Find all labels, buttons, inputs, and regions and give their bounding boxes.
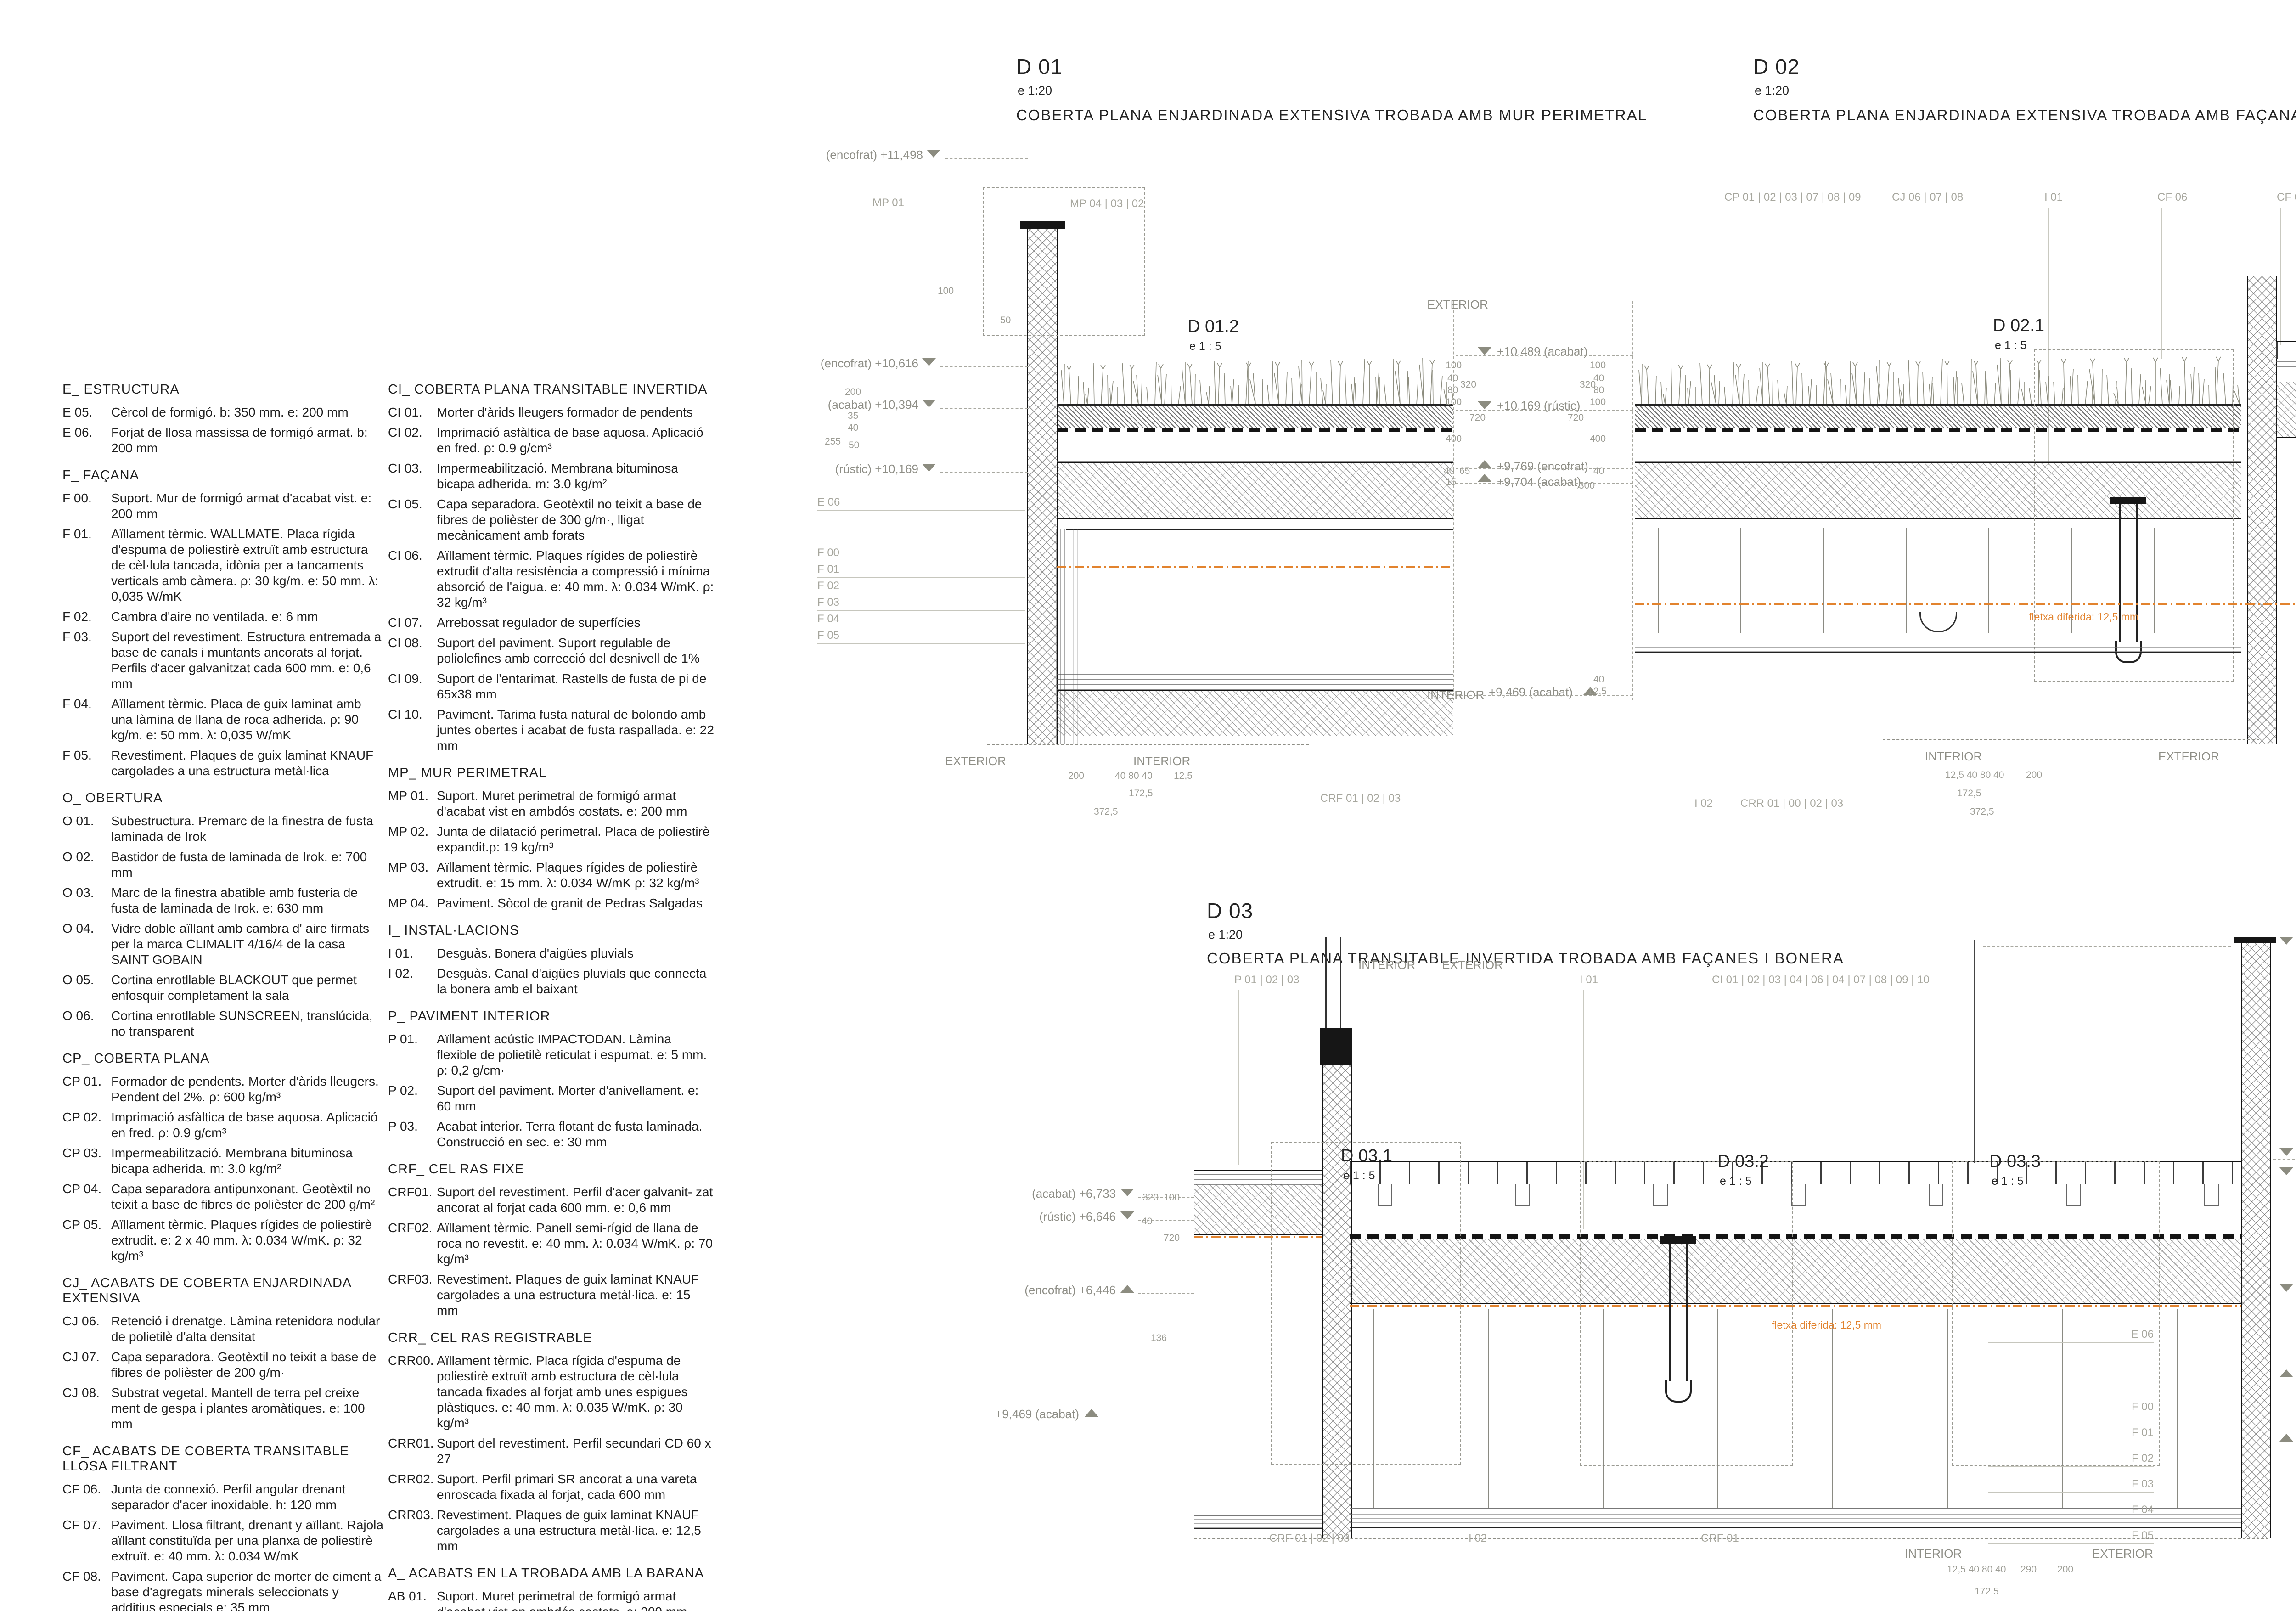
d02-tag-cf-row: CF 07 | 08 xyxy=(2277,191,2296,204)
ceiling-hanger xyxy=(1488,1309,1489,1508)
ceiling-hanger xyxy=(1988,528,1989,633)
d03-code: D 03 xyxy=(1207,898,1253,923)
d02-tag-cf06: CF 06 xyxy=(2157,191,2187,204)
d03-tag-crf01: CRF 01 xyxy=(1701,1532,1739,1545)
legend-item-tag: CP 04. xyxy=(62,1181,111,1212)
d031-scale: e 1 : 5 xyxy=(1343,1169,1375,1183)
legend-item-tag: CF 07. xyxy=(62,1517,111,1564)
d01-dim-40: 40 xyxy=(848,422,858,434)
legend-item-tag: CI 05. xyxy=(388,496,437,543)
legend-item-text: Cèrcol de formigó. b: 350 mm. e: 200 mm xyxy=(111,405,384,420)
level-marker-icon xyxy=(2279,1167,2293,1175)
legend-item-text: Substrat vegetal. Mantell de terra pel c… xyxy=(111,1385,384,1432)
legend-item-text: Suport. Perfil primari SR ancorat a una … xyxy=(437,1471,714,1503)
d02-facade-wall xyxy=(2247,276,2277,744)
legend-item: CJ 06.Retenció i drenatge. Làmina reteni… xyxy=(62,1313,384,1345)
legend-item-tag: O 01. xyxy=(62,813,111,845)
legend-item-tag: P 03. xyxy=(388,1119,437,1150)
d02-scale: e 1:20 xyxy=(1755,84,1789,98)
d02-outer-paving xyxy=(2276,341,2296,359)
d02-suspended-ceiling xyxy=(1635,633,2241,653)
d01-leader xyxy=(945,158,1028,159)
d032-code: D 03.2 xyxy=(1717,1152,1769,1172)
d03-railing xyxy=(1974,940,1975,1163)
legend-item-text: Cambra d'aire no ventilada. e: 6 mm xyxy=(111,609,384,625)
d02-tag-leader xyxy=(2280,208,2281,345)
d03-dim-290: 290 xyxy=(2020,1564,2037,1575)
legend-item-tag: CF 06. xyxy=(62,1481,111,1513)
legend-item-text: Suport de l'entarimat. Rastells de fusta… xyxy=(437,671,714,702)
d03-dim: 320 xyxy=(1142,1192,1159,1203)
legend-item-tag: CI 10. xyxy=(388,707,437,754)
legend-item-tag: E 05. xyxy=(62,405,111,420)
mid-boundary-right xyxy=(1632,301,1633,700)
ceiling-hanger xyxy=(1658,528,1659,633)
legend-item: E 05.Cèrcol de formigó. b: 350 mm. e: 20… xyxy=(62,405,384,420)
mid-leader xyxy=(1456,410,1633,411)
legend-item: O 03.Marc de la finestra abatible amb fu… xyxy=(62,885,384,916)
legend-item-text: Suport del revestiment. Perfil d'acer ga… xyxy=(437,1184,714,1216)
d02-tag-crr-row: CRR 01 | 00 | 02 | 03 xyxy=(1740,797,1843,810)
level-marker-icon xyxy=(1085,1409,1098,1417)
level-marker-icon xyxy=(922,464,936,472)
d03-tag-i02: I 02 xyxy=(1469,1532,1487,1545)
d01-title: COBERTA PLANA ENJARDINADA EXTENSIVA TROB… xyxy=(1016,107,1647,124)
legend-item: AB 01.Suport. Muret perimetral de formig… xyxy=(388,1588,714,1611)
legend-section-title: I_ INSTAL·LACIONS xyxy=(388,923,714,938)
d03-tag-f03: F 03 xyxy=(1988,1478,2154,1493)
d03-word-exterior-top: EXTERIOR xyxy=(1442,958,1503,972)
legend-item-tag: F 00. xyxy=(62,490,111,522)
legend-item-tag: CRR02. xyxy=(388,1471,437,1503)
d01-dim-100: 100 xyxy=(938,286,954,297)
d03-leader xyxy=(2273,1159,2296,1160)
legend-item-tag: CRF03. xyxy=(388,1272,437,1318)
legend-item: CP 05.Aïllament tèrmic. Plaques rígides … xyxy=(62,1217,384,1264)
d03-window-frame xyxy=(1325,937,1327,1029)
mid-dim: 320 xyxy=(1460,379,1476,390)
legend-item: CRR01.Suport del revestiment. Perfil sec… xyxy=(388,1436,714,1467)
d01-level-enc10616: (encofrat) +10,616 xyxy=(753,356,918,371)
legend-item-text: Morter d'àrids lleugers formador de pend… xyxy=(437,405,714,420)
mid-dim: 400 xyxy=(1446,434,1462,445)
legend-item-text: Imprimació asfàltica de base aquosa. Apl… xyxy=(111,1110,384,1141)
legend-item: P 01.Aïllament acústic IMPACTODAN. Làmin… xyxy=(388,1031,714,1078)
mid-dim: 400 xyxy=(1590,434,1606,445)
legend-item-tag: CI 02. xyxy=(388,425,437,456)
drawing-sheet: E_ ESTRUCTURAE 05.Cèrcol de formigó. b: … xyxy=(0,0,2296,1611)
d01-word-interior: INTERIOR xyxy=(1133,754,1190,768)
legend-item-tag: CI 08. xyxy=(388,635,437,666)
legend-item: P 02.Suport del paviment. Morter d'anive… xyxy=(388,1083,714,1114)
d03-tag-f01: F 01 xyxy=(1988,1426,2154,1441)
d03-right-facade-wall xyxy=(2241,943,2271,1538)
d03-tag-f05: F 05 xyxy=(1988,1529,2154,1544)
legend-item: CRR02.Suport. Perfil primari SR ancorat … xyxy=(388,1471,714,1503)
d01-floor-layers xyxy=(1057,674,1453,690)
mid-dim: 40 xyxy=(1444,466,1454,477)
d02-outer-slab xyxy=(2276,382,2296,438)
legend-item: E 06.Forjat de llosa massissa de formigó… xyxy=(62,425,384,456)
legend-item-text: Paviment. Sòcol de granit de Pedras Salg… xyxy=(437,896,714,911)
legend-item-tag: CP 05. xyxy=(62,1217,111,1264)
d01-tag-f03: F 03 xyxy=(817,596,1025,611)
legend-item-tag: O 04. xyxy=(62,921,111,968)
mid-dim: 720 xyxy=(1469,412,1486,423)
legend-item: F 04.Aïllament tèrmic. Placa de guix lam… xyxy=(62,696,384,743)
ceiling-hanger xyxy=(1373,1309,1374,1508)
legend-item: CI 05.Capa separadora. Geotèxtil no teix… xyxy=(388,496,714,543)
legend-item-tag: CF 08. xyxy=(62,1569,111,1611)
d03-dim: 720 xyxy=(1164,1233,1180,1244)
legend-item-text: Arrebossat regulador de superfícies xyxy=(437,615,714,631)
legend-item-tag: F 02. xyxy=(62,609,111,625)
d012-code: D 01.2 xyxy=(1187,317,1239,337)
d01-dim-255: 255 xyxy=(825,436,841,447)
d012-scale: e 1 : 5 xyxy=(1189,340,1221,353)
d03-leader xyxy=(1983,946,2231,947)
d03-word-interior-top: INTERIOR xyxy=(1358,958,1415,972)
legend-item-tag: F 05. xyxy=(62,748,111,779)
d03-window-sill xyxy=(1320,1028,1352,1065)
ceiling-hanger xyxy=(1947,1309,1948,1508)
d01-tag-mp-row: MP 04 | 03 | 02 xyxy=(1070,197,1144,210)
legend-item: O 05.Cortina enrotllable BLACKOUT que pe… xyxy=(62,972,384,1003)
legend-item-text: Revestiment. Plaques de guix laminat KNA… xyxy=(111,748,384,779)
d01-tag-crf-row: CRF 01 | 02 | 03 xyxy=(1320,792,1401,805)
d02-tag-leader xyxy=(2161,208,2162,359)
level-marker-icon xyxy=(927,150,940,158)
d01-vegetation xyxy=(1057,350,1453,404)
legend-item-tag: CI 03. xyxy=(388,461,437,492)
legend-item: CRR00.Aïllament tèrmic. Placa rígida d'e… xyxy=(388,1353,714,1431)
legend-item-tag: F 04. xyxy=(62,696,111,743)
d03-level-6646: (rústic) +6,646 xyxy=(951,1210,1116,1224)
legend-item: CI 07.Arrebossat regulador de superfície… xyxy=(388,615,714,631)
legend-item-tag: MP 04. xyxy=(388,896,437,911)
mid-level-9704: +9,704 (acabat) xyxy=(1497,475,1581,489)
legend-item-text: Aïllament tèrmic. Placa de guix laminat … xyxy=(111,696,384,743)
legend-item: O 06.Cortina enrotllable SUNSCREEN, tran… xyxy=(62,1008,384,1039)
legend-item-text: Junta de dilatació perimetral. Placa de … xyxy=(437,824,714,855)
legend-item-tag: CJ 08. xyxy=(62,1385,111,1432)
d03-word-exterior: EXTERIOR xyxy=(2092,1547,2153,1561)
legend-item-tag: CI 01. xyxy=(388,405,437,420)
d021-code: D 02.1 xyxy=(1993,316,2044,336)
legend-item-text: Retenció i drenatge. Làmina retenidora n… xyxy=(111,1313,384,1345)
d01-dim-1725: 172,5 xyxy=(1129,788,1153,799)
level-marker-icon xyxy=(2279,1434,2293,1442)
legend-item-tag: O 05. xyxy=(62,972,111,1003)
d02-deflection-line xyxy=(1635,603,2296,605)
legend-item: CI 08.Suport del paviment. Suport regula… xyxy=(388,635,714,666)
d03-dim-200: 200 xyxy=(2057,1564,2073,1575)
d01-tag-f05: F 05 xyxy=(817,629,1025,644)
d01-level-aca10394: (acabat) +10,394 xyxy=(753,398,918,412)
legend-item-tag: E 06. xyxy=(62,425,111,456)
d01-word-exterior: EXTERIOR xyxy=(945,754,1006,768)
legend-section-title: O_ OBERTURA xyxy=(62,791,384,806)
d032-scale: e 1 : 5 xyxy=(1720,1175,1752,1188)
legend-item: F 03.Suport del revestiment. Estructura … xyxy=(62,629,384,692)
d02-deflection-note: fletxa diferida: 12,5 mm xyxy=(2029,611,2138,623)
d01-leader xyxy=(940,366,1028,367)
paving-pedestal xyxy=(1515,1184,1530,1206)
d03-dim: 136 xyxy=(1151,1333,1167,1344)
d03-tag-f02: F 02 xyxy=(1988,1452,2154,1467)
legend-section-title: MP_ MUR PERIMETRAL xyxy=(388,766,714,781)
legend-item-text: Impermeabilització. Membrana bituminosa … xyxy=(111,1145,384,1177)
legend-item-text: Paviment. Capa superior de morter de cim… xyxy=(111,1569,384,1611)
legend-item-text: Subestructura. Premarc de la finestra de… xyxy=(111,813,384,845)
legend-item-text: Suport. Mur de formigó armat d'acabat vi… xyxy=(111,490,384,522)
legend-item: CI 09.Suport de l'entarimat. Rastells de… xyxy=(388,671,714,702)
level-marker-icon xyxy=(1478,401,1491,409)
legend-item-text: Cortina enrotllable SUNSCREEN, translúci… xyxy=(111,1008,384,1039)
mid-dim: 40 xyxy=(1593,674,1604,685)
level-marker-icon xyxy=(1120,1189,1134,1196)
legend-item-tag: P 01. xyxy=(388,1031,437,1078)
legend-item: CRF03.Revestiment. Plaques de guix lamin… xyxy=(388,1272,714,1318)
ceiling-hanger xyxy=(2154,528,2155,633)
legend-item: O 01.Subestructura. Premarc de la finest… xyxy=(62,813,384,845)
legend-item: CF 06.Junta de connexió. Perfil angular … xyxy=(62,1481,384,1513)
legend-item: CP 04.Capa separadora antipunxonant. Geo… xyxy=(62,1181,384,1212)
ceiling-hanger xyxy=(1717,1309,1718,1508)
legend-item-tag: O 06. xyxy=(62,1008,111,1039)
legend-item-text: Aïllament acústic IMPACTODAN. Làmina fle… xyxy=(437,1031,714,1078)
legend-item-text: Paviment. Llosa filtrant, drenant y aïll… xyxy=(111,1517,384,1564)
d01-dim-50b: 50 xyxy=(849,440,859,451)
d01-leader xyxy=(940,472,1028,473)
legend-item-text: Junta de connexió. Perfil angular drenan… xyxy=(111,1481,384,1513)
level-marker-icon xyxy=(1478,474,1491,482)
d01-tag-mp01: MP 01 xyxy=(872,197,1024,211)
legend-item-tag: F 01. xyxy=(62,526,111,604)
legend-item: CF 08.Paviment. Capa superior de morter … xyxy=(62,1569,384,1611)
d01-fixed-ceiling xyxy=(1066,518,1453,530)
mid-dim: 80 xyxy=(1447,385,1458,396)
d03-tag-f00: F 00 xyxy=(1988,1401,2154,1415)
legend-item: CP 03.Impermeabilització. Membrana bitum… xyxy=(62,1145,384,1177)
d03-dim: 100 xyxy=(1164,1192,1180,1203)
legend-item-text: Impermeabilització. Membrana bituminosa … xyxy=(437,461,714,492)
legend-item: P 03.Acabat interior. Terra flotant de f… xyxy=(388,1119,714,1150)
mid-level-10169: +10,169 (rústic) xyxy=(1497,399,1580,413)
mid-level-10489: +10,489 (acabat) xyxy=(1497,344,1587,359)
level-marker-icon xyxy=(1478,347,1491,355)
legend-item: F 05.Revestiment. Plaques de guix lamina… xyxy=(62,748,384,779)
d01-tag-f01: F 01 xyxy=(817,563,1025,578)
mid-level-9469: +9,469 (acabat) xyxy=(1489,685,1573,699)
legend-item: F 02.Cambra d'aire no ventilada. e: 6 mm xyxy=(62,609,384,625)
d02-dim-3725: 372,5 xyxy=(1970,806,1994,817)
legend-item-tag: CJ 07. xyxy=(62,1349,111,1380)
d01-tag-f02: F 02 xyxy=(817,580,1025,594)
legend-section-title: CI_ COBERTA PLANA TRANSITABLE INVERTIDA xyxy=(388,382,714,397)
legend-item-tag: MP 03. xyxy=(388,860,437,891)
legend-section-title: CF_ ACABATS DE COBERTA TRANSITABLE LLOSA… xyxy=(62,1444,384,1474)
d03-deflection-note: fletxa diferida: 12,5 mm xyxy=(1772,1319,1881,1331)
legend-item-text: Aïllament tèrmic. Placa rígida d'espuma … xyxy=(437,1353,714,1431)
mid-leader xyxy=(1456,468,1633,469)
level-marker-icon xyxy=(2279,937,2293,945)
d03-dim: 40 xyxy=(1142,1216,1152,1227)
legend-item-text: Forjat de llosa massissa de formigó arma… xyxy=(111,425,384,456)
d01-dim-35: 35 xyxy=(848,411,858,422)
d01-level-enc11498: (encofrat) +11,498 xyxy=(758,148,923,162)
legend-item-text: Suport. Muret perimetral de formigó arma… xyxy=(437,1588,714,1611)
ceiling-hanger xyxy=(1603,1309,1604,1508)
legend-item-text: Suport del paviment. Morter d'anivellame… xyxy=(437,1083,714,1114)
d02-drain-grate xyxy=(2110,497,2146,504)
legend-item: MP 01.Suport. Muret perimetral de formig… xyxy=(388,788,714,819)
paving-pedestal xyxy=(2204,1184,2219,1206)
d03-word-interior: INTERIOR xyxy=(1905,1547,1962,1561)
legend-section-title: CRR_ CEL RAS REGISTRABLE xyxy=(388,1330,714,1346)
legend-item-tag: CI 06. xyxy=(388,548,437,610)
legend-item-tag: MP 02. xyxy=(388,824,437,855)
legend-item-tag: F 03. xyxy=(62,629,111,692)
d021-scale: e 1 : 5 xyxy=(1995,339,2027,352)
legend-section-title: E_ ESTRUCTURA xyxy=(62,382,384,397)
d03-tag-leader xyxy=(1716,990,1716,1165)
d03-window-frame xyxy=(1340,937,1341,1029)
ceiling-hanger xyxy=(2177,1309,2178,1508)
d01-cut-line xyxy=(987,744,1309,745)
legend-item-tag: O 03. xyxy=(62,885,111,916)
d02-tag-i02: I 02 xyxy=(1694,797,1713,810)
legend-item: MP 03.Aïllament tèrmic. Plaques rígides … xyxy=(388,860,714,891)
level-marker-icon xyxy=(922,400,936,407)
d01-dim-chain2: 40 80 40 xyxy=(1115,771,1153,782)
legend-item-text: Desguàs. Canal d'aigües pluvials que con… xyxy=(437,966,714,997)
legend-item: CP 01.Formador de pendents. Morter d'àri… xyxy=(62,1074,384,1105)
paving-pedestal xyxy=(1929,1184,1943,1206)
d01-tag-e06: E 06 xyxy=(817,496,1025,511)
d02-tag-leader xyxy=(1896,208,1896,359)
mid-dim: 80 xyxy=(1593,385,1604,396)
legend-item-tag: O 02. xyxy=(62,849,111,880)
legend-item-text: Imprimació asfàltica de base aquosa. Apl… xyxy=(437,425,714,456)
legend-item-tag: CRR00. xyxy=(388,1353,437,1431)
legend-item-text: Marc de la finestra abatible amb fusteri… xyxy=(111,885,384,916)
legend-item-text: Aïllament tèrmic. WALLMATE. Placa rígida… xyxy=(111,526,384,604)
legend-item: I 01.Desguàs. Bonera d'aigües pluvials xyxy=(388,946,714,961)
d02-tag-cj-row: CJ 06 | 07 | 08 xyxy=(1892,191,1963,204)
d03-tag-crf-row: CRF 01 | 02 | 03 xyxy=(1269,1532,1350,1545)
legend-item: I 02.Desguàs. Canal d'aigües pluvials qu… xyxy=(388,966,714,997)
legend-item: CI 03.Impermeabilització. Membrana bitum… xyxy=(388,461,714,492)
legend-item-tag: CRR01. xyxy=(388,1436,437,1467)
legend-item-tag: AB 01. xyxy=(388,1588,437,1611)
d01-leader xyxy=(940,408,1028,409)
mid-dim: 300 xyxy=(1579,480,1595,491)
legend-item-text: Suport del revestiment. Estructura entre… xyxy=(111,629,384,692)
legend-item-text: Suport del paviment. Suport regulable de… xyxy=(437,635,714,666)
d02-dim-1725: 172,5 xyxy=(1957,788,1981,799)
d03-scale: e 1:20 xyxy=(1208,928,1243,942)
d02-dim-200: 200 xyxy=(2026,770,2042,781)
d03-level-6446: (encofrat) +6,446 xyxy=(951,1283,1116,1297)
legend-item-tag: CI 07. xyxy=(388,615,437,631)
legend-item-text: Suport. Muret perimetral de formigó arma… xyxy=(437,788,714,819)
mid-word-exterior: EXTERIOR xyxy=(1427,298,1488,312)
mid-leader xyxy=(1456,483,1633,484)
legend-item-text: Cortina enrotllable BLACKOUT que permet … xyxy=(111,972,384,1003)
legend-item-text: Capa separadora. Geotèxtil no teixit a b… xyxy=(437,496,714,543)
legend-item-tag: MP 01. xyxy=(388,788,437,819)
mid-dim: 15 xyxy=(1446,477,1456,488)
legend-item: CI 02.Imprimació asfàltica de base aquos… xyxy=(388,425,714,456)
legend-item-tag: CRR03. xyxy=(388,1507,437,1554)
legend-item-text: Revestiment. Plaques de guix laminat KNA… xyxy=(437,1507,714,1554)
d03-tag-p-row: P 01 | 02 | 03 xyxy=(1234,974,1299,986)
legend-item: CI 01.Morter d'àrids lleugers formador d… xyxy=(388,405,714,420)
d01-dim-200b: 200 xyxy=(1068,771,1084,782)
legend-section-title: A_ ACABATS EN LA TROBADA AMB LA BARANA xyxy=(388,1566,714,1581)
d03-interior-ceiling xyxy=(1194,1515,1322,1529)
legend-section-title: CP_ COBERTA PLANA xyxy=(62,1051,384,1066)
legend-item-tag: P 02. xyxy=(388,1083,437,1114)
d01-tag-f00: F 00 xyxy=(817,546,1025,561)
d03-right-coping xyxy=(2234,937,2276,943)
legend-item-tag: CP 02. xyxy=(62,1110,111,1141)
legend-item: CRF01.Suport del revestiment. Perfil d'a… xyxy=(388,1184,714,1216)
ceiling-hanger xyxy=(1906,528,1907,633)
d02-outer-layers xyxy=(2276,358,2296,382)
mid-dim: 100 xyxy=(1446,360,1462,371)
d03-leader xyxy=(1138,1293,1194,1294)
d02-word-interior: INTERIOR xyxy=(1925,749,1982,764)
d01-deflection-line xyxy=(1057,566,1453,568)
legend-item-tag: CP 01. xyxy=(62,1074,111,1105)
d01-scale: e 1:20 xyxy=(1018,84,1052,98)
d01-roof-slab xyxy=(1057,462,1453,519)
legend-column-1: E_ ESTRUCTURAE 05.Cèrcol de formigó. b: … xyxy=(62,370,384,1611)
legend-item: CF 07.Paviment. Llosa filtrant, drenant … xyxy=(62,1517,384,1564)
legend-item-text: Aïllament tèrmic. Panell semi-rígid de l… xyxy=(437,1220,714,1267)
legend-item-text: Aïllament tèrmic. Plaques rígides de pol… xyxy=(111,1217,384,1264)
legend-item: O 02.Bastidor de fusta de laminada de Ir… xyxy=(62,849,384,880)
d02-tag-leader xyxy=(1728,208,1728,359)
level-marker-icon xyxy=(1120,1211,1134,1219)
d03-tag-f04: F 04 xyxy=(1988,1504,2154,1518)
d01-substrate-layer xyxy=(1057,404,1453,428)
mid-dim: 100 xyxy=(1446,397,1462,408)
legend-item-text: Aïllament tèrmic. Plaques rígides de pol… xyxy=(437,548,714,610)
d03-tag-i01: I 01 xyxy=(1580,974,1598,986)
d03-title: COBERTA PLANA TRANSITABLE INVERTIDA TROB… xyxy=(1207,950,1844,967)
d03-dim-1725: 172,5 xyxy=(1975,1586,1999,1597)
d03-level-9469L: +9,469 (acabat) xyxy=(918,1407,1079,1421)
mid-dim: 40 xyxy=(1447,373,1458,384)
d03-tag-leader xyxy=(1238,990,1239,1165)
mid-word-interior: INTERIOR xyxy=(1427,688,1484,702)
level-marker-icon xyxy=(2279,1148,2293,1156)
legend-item: O 04.Vidre doble aïllant amb cambra d' a… xyxy=(62,921,384,968)
legend-section-title: CJ_ ACABATS DE COBERTA ENJARDINADA EXTEN… xyxy=(62,1276,384,1306)
legend-column-2: CI_ COBERTA PLANA TRANSITABLE INVERTIDAC… xyxy=(388,370,714,1611)
legend-item: CJ 08.Substrat vegetal. Mantell de terra… xyxy=(62,1385,384,1432)
d02-cut-line xyxy=(1883,739,2259,740)
legend-item: MP 02.Junta de dilatació perimetral. Pla… xyxy=(388,824,714,855)
legend-item-text: Formador de pendents. Morter d'àrids lle… xyxy=(111,1074,384,1105)
legend-item: CJ 07.Capa separadora. Geotèxtil no teix… xyxy=(62,1349,384,1380)
ceiling-hanger xyxy=(1832,1309,1833,1508)
mid-dim: 100 xyxy=(1590,360,1606,371)
d033-scale: e 1 : 5 xyxy=(1992,1175,2024,1188)
